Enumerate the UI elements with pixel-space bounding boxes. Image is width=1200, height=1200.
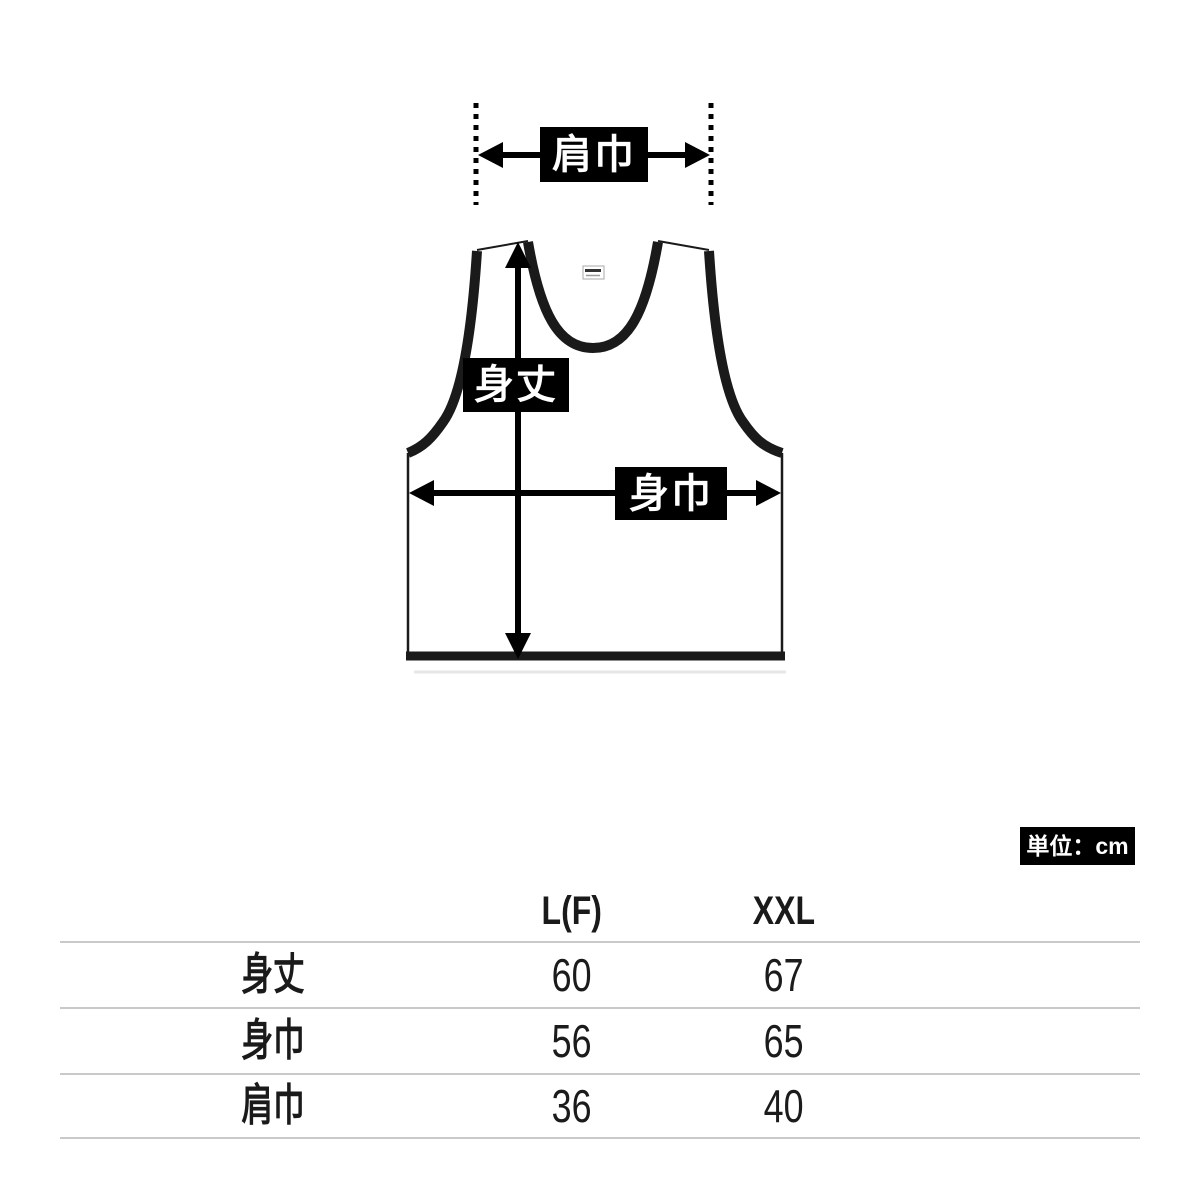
table-row: 肩巾 36 40 (60, 1073, 1140, 1139)
size-table: L(F) XXL 身丈 60 67 身巾 56 (60, 880, 1140, 1139)
column-header-label: L(F) (542, 891, 602, 931)
measurement-value: 65 (764, 1018, 804, 1064)
value-cell: 40 (658, 1083, 910, 1129)
value-cell: 65 (658, 1018, 910, 1064)
value-cell: 56 (486, 1018, 658, 1064)
tank-top-outline (406, 241, 786, 672)
row-label-cell: 身巾 (60, 1019, 486, 1063)
table-row: 身巾 56 65 (60, 1007, 1140, 1073)
row-label: 肩巾 (241, 1084, 304, 1128)
size-column-header: XXL (658, 891, 910, 931)
size-spec-page: 肩巾 身丈 身巾 単位：cm L(F) XXL 身丈 60 67 (0, 0, 1200, 1200)
row-label: 身丈 (241, 953, 304, 997)
row-label: 身巾 (241, 1019, 304, 1063)
body-width-label: 身巾 (615, 467, 727, 520)
value-cell: 36 (486, 1083, 658, 1129)
value-cell: 60 (486, 952, 658, 998)
measurement-value: 40 (764, 1083, 804, 1129)
neck-tag (583, 266, 604, 279)
size-column-header: L(F) (486, 891, 658, 931)
table-row: 身丈 60 67 (60, 941, 1140, 1007)
measurement-diagram (0, 0, 1200, 760)
value-cell: 67 (658, 952, 910, 998)
measurement-value: 56 (552, 1018, 592, 1064)
size-table-header-row: L(F) XXL (60, 880, 1140, 941)
column-header-label: XXL (753, 891, 815, 931)
shoulder-width-label: 肩巾 (540, 127, 648, 182)
row-label-cell: 肩巾 (60, 1084, 486, 1128)
measurement-value: 60 (552, 952, 592, 998)
measurement-value: 36 (552, 1083, 592, 1129)
unit-badge: 単位：cm (1020, 827, 1135, 865)
measurement-value: 67 (764, 952, 804, 998)
body-length-label: 身丈 (463, 358, 569, 412)
row-label-cell: 身丈 (60, 953, 486, 997)
body-length-arrow (505, 242, 531, 659)
